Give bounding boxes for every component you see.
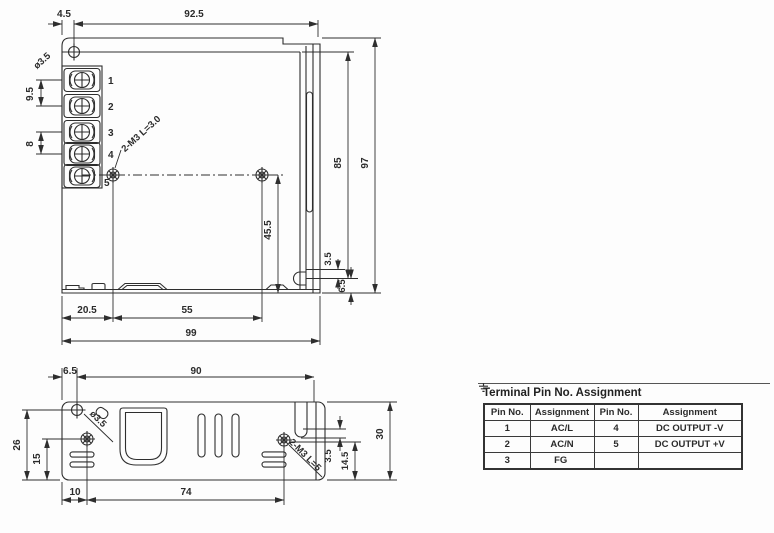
dim-55: 55 (181, 305, 193, 316)
pin-table-cell (594, 453, 638, 470)
vent-slot (70, 462, 94, 467)
thread-spec-label: 2-M3 L=3.0 (119, 114, 163, 155)
vent-slot (232, 414, 239, 457)
pin-table-title: Terminal Pin No. Assignment (483, 387, 772, 399)
bottom-view-outline (62, 402, 325, 481)
dim-26: 26 (12, 439, 23, 451)
thread-spec-label: 2-M3 L=5 (286, 437, 323, 474)
dim-74: 74 (180, 487, 192, 498)
vent-slot (198, 414, 205, 457)
dim-85: 85 (333, 157, 344, 169)
vent-slot (262, 462, 286, 467)
terminal-number-4: 4 (108, 150, 114, 161)
terminal-screw (64, 69, 100, 92)
vent-slot (70, 452, 94, 457)
dim-3-5: 3.5 (323, 252, 334, 266)
dim-20-5: 20.5 (77, 305, 97, 316)
dim-6-5: 6.5 (63, 366, 77, 377)
terminal-screw (64, 165, 100, 188)
dim-8: 8 (25, 141, 36, 147)
bottom-view-extension-lines (22, 368, 397, 505)
pin-table-cell: DC OUTPUT -V (638, 421, 742, 437)
dim-3-5: 3.5 (323, 449, 334, 463)
pin-table-body: 1AC/L4DC OUTPUT -V2AC/N5DC OUTPUT +V3FG (484, 421, 742, 470)
dim-6-5: 6.5 (337, 279, 348, 293)
terminal-screw (64, 143, 100, 166)
dim-99: 99 (185, 328, 197, 339)
mounting-hole-icon (66, 44, 83, 61)
edge-notch (295, 402, 307, 437)
section-divider (478, 383, 770, 384)
hole-diameter-label: ø3.5 (87, 409, 109, 431)
dim-9-5: 9.5 (25, 87, 36, 101)
pin-table-cell: 3 (484, 453, 530, 470)
dim-90: 90 (190, 366, 202, 377)
terminal-pin-assignment-section: Terminal Pin No. Assignment Pin No. Assi… (478, 383, 772, 470)
dim-4-5: 4.5 (57, 9, 71, 20)
dim-92-5: 92.5 (184, 9, 204, 20)
mechanical-drawing: 4.5 92.5 ø3.5 9.5 8 2-M3 L=3.0 85 97 45.… (0, 0, 440, 533)
pin-table-cell: 4 (594, 421, 638, 437)
hole-diameter-label: ø3.5 (32, 50, 54, 71)
pin-assignment-table: Pin No. Assignment Pin No. Assignment 1A… (483, 403, 743, 470)
dim-45-5: 45.5 (263, 220, 274, 240)
pin-table-cell: 5 (594, 437, 638, 453)
foot-tab (266, 285, 288, 290)
terminal-number-2: 2 (108, 102, 114, 113)
foot-tab (118, 284, 167, 290)
pin-table-cell: FG (530, 453, 594, 470)
side-vent-slot (307, 92, 313, 212)
case-cutout-inner (126, 413, 162, 460)
pin-table-row: 1AC/L4DC OUTPUT -V (484, 421, 742, 437)
foot-tab (66, 286, 84, 290)
terminal-number-1: 1 (108, 76, 114, 87)
dim-14-5: 14.5 (340, 451, 351, 470)
earth-ground-icon (478, 383, 489, 393)
dim-97: 97 (360, 157, 371, 169)
mounting-hole-icon (69, 402, 86, 419)
datasheet-mechanical-page: 4.5 92.5 ø3.5 9.5 8 2-M3 L=3.0 85 97 45.… (0, 0, 774, 533)
pin-table-cell (638, 453, 742, 470)
pin-table-cell: 2 (484, 437, 530, 453)
terminal-screw (64, 95, 100, 118)
bottom-view-labels: 6.5 90 ø3.5 26 15 10 74 2-M3 L=5 3.5 14.… (12, 366, 386, 498)
leader-line (115, 150, 121, 168)
pin-table-cell: AC/N (530, 437, 594, 453)
dim-10: 10 (69, 487, 81, 498)
terminal-number-3: 3 (108, 128, 114, 139)
terminal-number-5: 5 (104, 178, 110, 189)
pin-table-row: 3FG (484, 453, 742, 470)
pin-table-header: Assignment (638, 404, 742, 421)
pin-table-header: Pin No. (594, 404, 638, 421)
vent-slot (215, 414, 222, 457)
case-cutout (120, 408, 167, 465)
pin-table-cell: AC/L (530, 421, 594, 437)
vent-slot (262, 452, 286, 457)
dim-15: 15 (32, 453, 43, 465)
top-view-outline (62, 38, 320, 293)
pin-table-cell: 1 (484, 421, 530, 437)
dim-30: 30 (375, 428, 386, 440)
pin-table-row: 2AC/N5DC OUTPUT +V (484, 437, 742, 453)
screw-hole-icon (79, 431, 95, 447)
pin-table-header: Pin No. (484, 404, 530, 421)
terminal-screw (64, 121, 100, 144)
pin-table-header-row: Pin No. Assignment Pin No. Assignment (484, 404, 742, 421)
pin-table-header: Assignment (530, 404, 594, 421)
pin-table-cell: DC OUTPUT +V (638, 437, 742, 453)
foot-tab (92, 284, 105, 290)
